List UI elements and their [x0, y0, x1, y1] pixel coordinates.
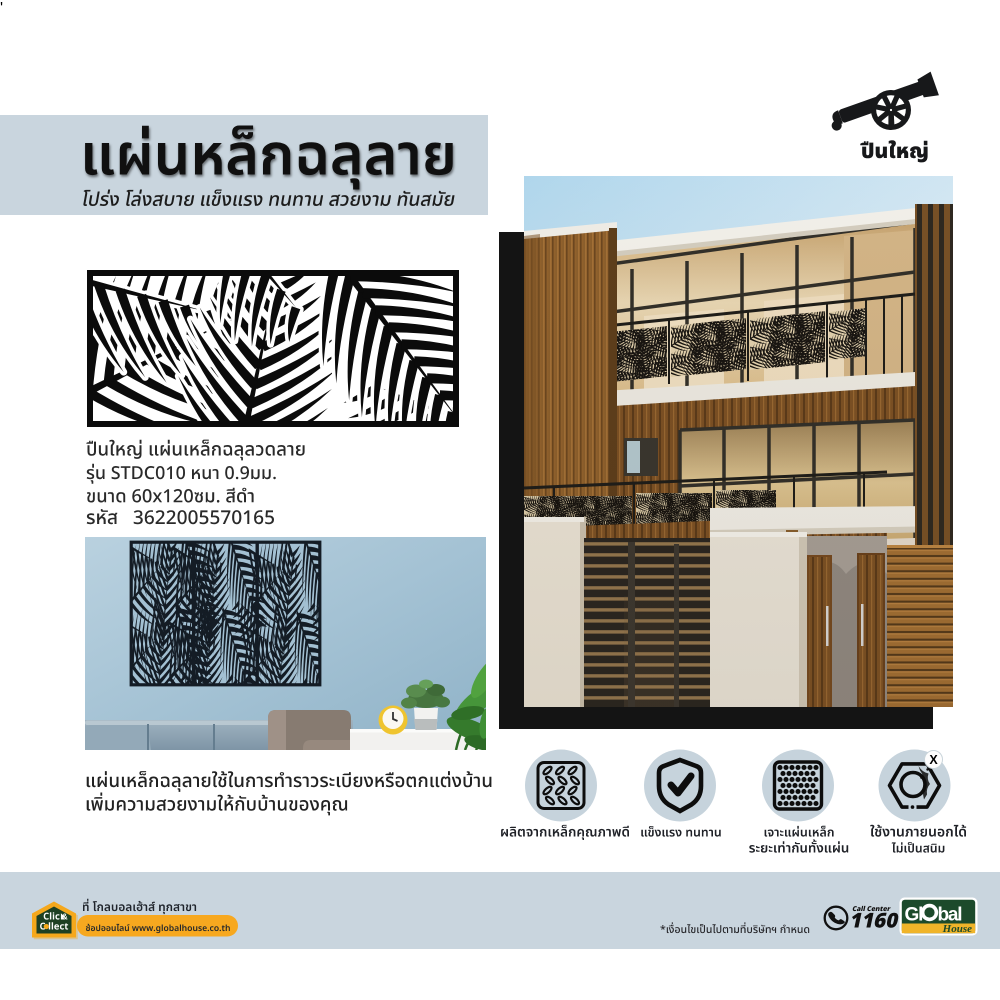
svg-text:X: X: [929, 753, 938, 767]
svg-text:Gl: Gl: [905, 905, 923, 926]
svg-text:House: House: [942, 923, 972, 935]
svg-text:&: &: [62, 913, 68, 922]
